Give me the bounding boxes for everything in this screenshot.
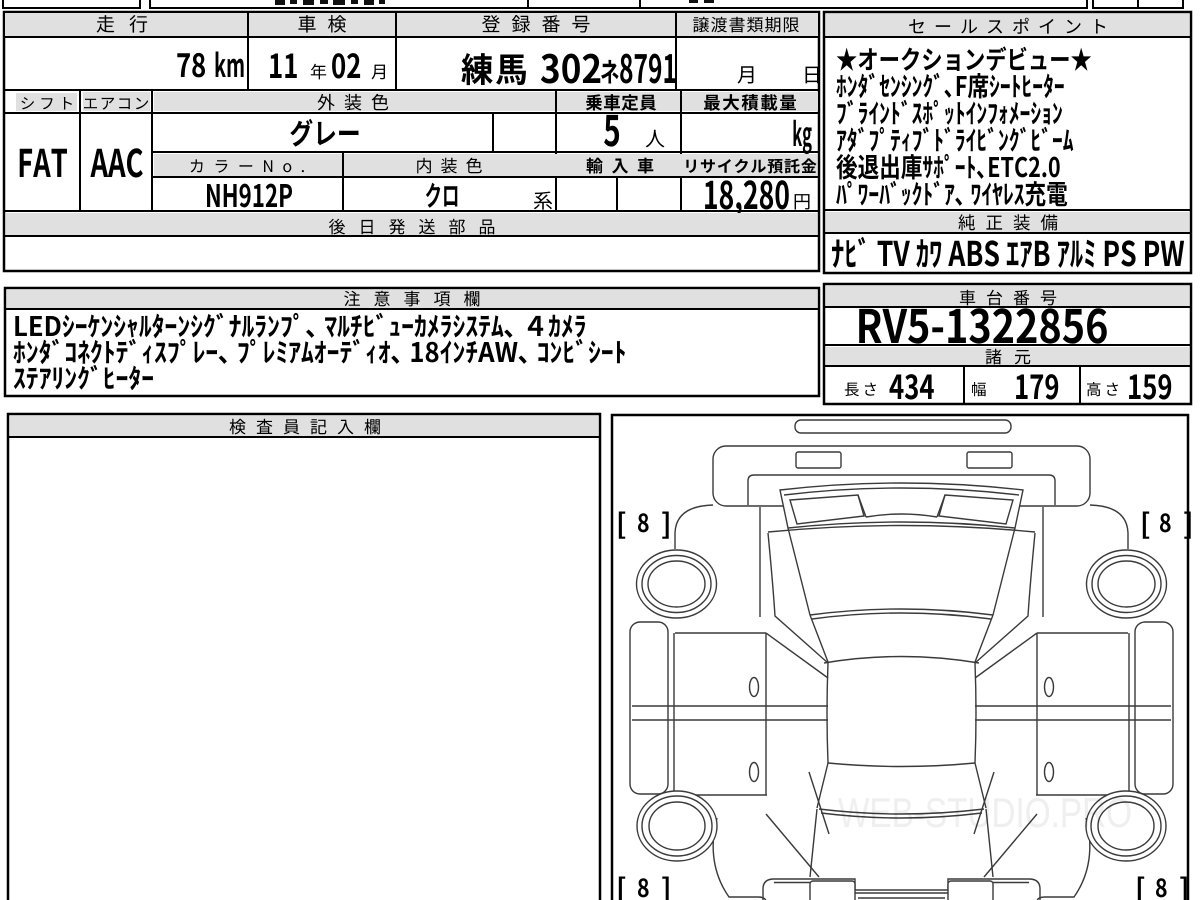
svg-text:WEB-STUDIO.PRO: WEB-STUDIO.PRO	[838, 789, 1132, 836]
